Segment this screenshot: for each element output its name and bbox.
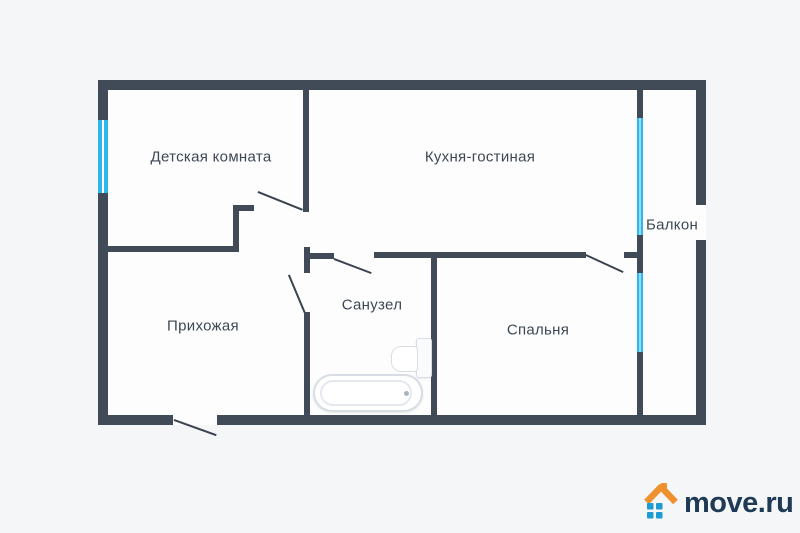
logo-text: move.ru — [684, 489, 793, 520]
wall-right-upper — [696, 80, 706, 205]
wall-left-upper — [98, 80, 108, 120]
floorplan-image: Детская комната Кухня-гостиная Балкон Пр… — [0, 0, 800, 533]
toilet-tank-icon — [416, 338, 432, 378]
wall-bedroom-top — [437, 252, 586, 258]
bathtub-basin — [320, 380, 412, 406]
wall-left-lower — [98, 193, 108, 425]
window-kitchen-balcony-icon — [637, 118, 643, 235]
window-detskaya-icon — [98, 120, 108, 193]
wall-detskaya-kitchen — [303, 90, 309, 212]
room-label-bedroom: Спальня — [507, 322, 569, 339]
wall-balcony-lower — [637, 352, 643, 415]
wall-bottom-left — [98, 415, 173, 425]
wall-bathroom-top — [374, 252, 437, 258]
room-label-detskaya: Детская комната — [151, 149, 272, 166]
room-label-bathroom: Санузел — [342, 297, 403, 314]
toilet-bowl-icon — [391, 346, 418, 372]
room-label-hallway: Прихожая — [167, 318, 239, 335]
room-label-kitchen: Кухня-гостиная — [425, 149, 535, 166]
window-bedroom-balcony-icon — [637, 273, 643, 352]
wall-balcony-middle — [637, 235, 643, 273]
bathtub-drain — [404, 391, 409, 396]
wall-corridor-stub — [304, 253, 334, 259]
bathtub-icon — [313, 374, 423, 412]
room-label-balcony: Балкон — [646, 217, 698, 234]
wall-bathroom-bedroom — [431, 252, 437, 415]
wall-top — [98, 80, 706, 90]
wall-corridor-vertical — [304, 247, 310, 273]
wall-balcony-upper — [637, 90, 643, 118]
wall-right-lower — [696, 240, 706, 425]
move-ru-logo[interactable]: move.ru — [644, 483, 793, 520]
wall-hallway-bathroom — [304, 312, 310, 415]
wall-detskaya-hallway — [108, 246, 239, 252]
wall-detskaya-corner-stub — [233, 205, 254, 211]
house-icon — [644, 483, 678, 520]
wall-bottom-right — [217, 415, 706, 425]
wall-detskaya-corner-vertical — [233, 205, 239, 252]
